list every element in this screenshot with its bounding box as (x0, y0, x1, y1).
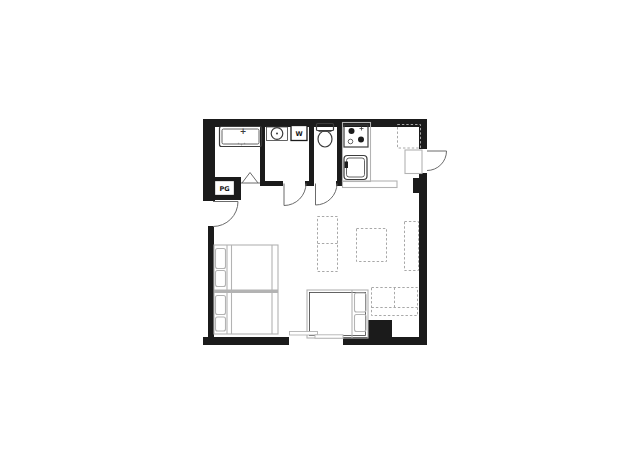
stove-icon (344, 125, 368, 147)
drain-dot (241, 144, 243, 146)
wall-left-lower (208, 226, 214, 345)
wall-right-lower (419, 173, 427, 345)
exterior-walls (203, 119, 427, 345)
tub-faucet-icon: + (240, 127, 247, 136)
sink-basin (347, 158, 365, 177)
column-right-wall (413, 178, 427, 193)
wall-washroom-toilet (309, 119, 314, 185)
burner-top (349, 128, 355, 134)
bottom-window (290, 332, 344, 339)
pillow (216, 317, 226, 331)
washing-machine-label: W (295, 130, 302, 138)
floor-plan-svg: + PG W (0, 0, 640, 452)
twin-beds (214, 245, 278, 334)
washroom-door-arc (284, 184, 306, 206)
drain-dot (238, 143, 240, 145)
pillow (355, 293, 367, 312)
washbasin-drain (276, 133, 278, 135)
drain-dot (244, 143, 246, 145)
sink-faucet (345, 162, 349, 169)
bathroom-folding-door-icon (242, 173, 258, 184)
stove-knob-cross (360, 127, 364, 131)
genkan-step (405, 150, 422, 174)
meter-box-label: PG (219, 185, 229, 193)
wall-toilet-kitchen (337, 119, 342, 185)
pillow (355, 315, 367, 332)
entry-door-arc (427, 151, 447, 171)
wall-bottom-left (203, 337, 289, 345)
pillow (216, 271, 226, 287)
wall-washroom-bottom-left (260, 181, 283, 186)
burner-bottom (358, 137, 364, 143)
toilet-bowl-icon (318, 131, 332, 147)
left-wall-door (213, 202, 238, 227)
toilet-door-arc (316, 184, 338, 206)
interior-walls (203, 119, 427, 338)
cabinet-right-dashed (405, 222, 419, 271)
toilet-room (316, 124, 338, 206)
table-dashed (357, 229, 387, 262)
shaft-bottom-black-box (368, 320, 392, 338)
pillow (216, 296, 226, 315)
kitchen (343, 123, 398, 188)
window-pane-left (290, 332, 318, 336)
refrigerator-dashed (398, 125, 421, 149)
window-pane-right (315, 335, 343, 338)
washroom: W (267, 126, 308, 206)
wall-top (203, 119, 427, 127)
beds-middle-divider (214, 290, 278, 294)
tub-drain-dots (238, 143, 246, 146)
pillow (216, 249, 226, 269)
left-door-arc (213, 202, 238, 227)
wall-bath-washroom (260, 119, 265, 185)
double-bed (307, 290, 368, 338)
burner-small (348, 139, 353, 144)
floor-plan-image: + PG W (0, 0, 640, 452)
